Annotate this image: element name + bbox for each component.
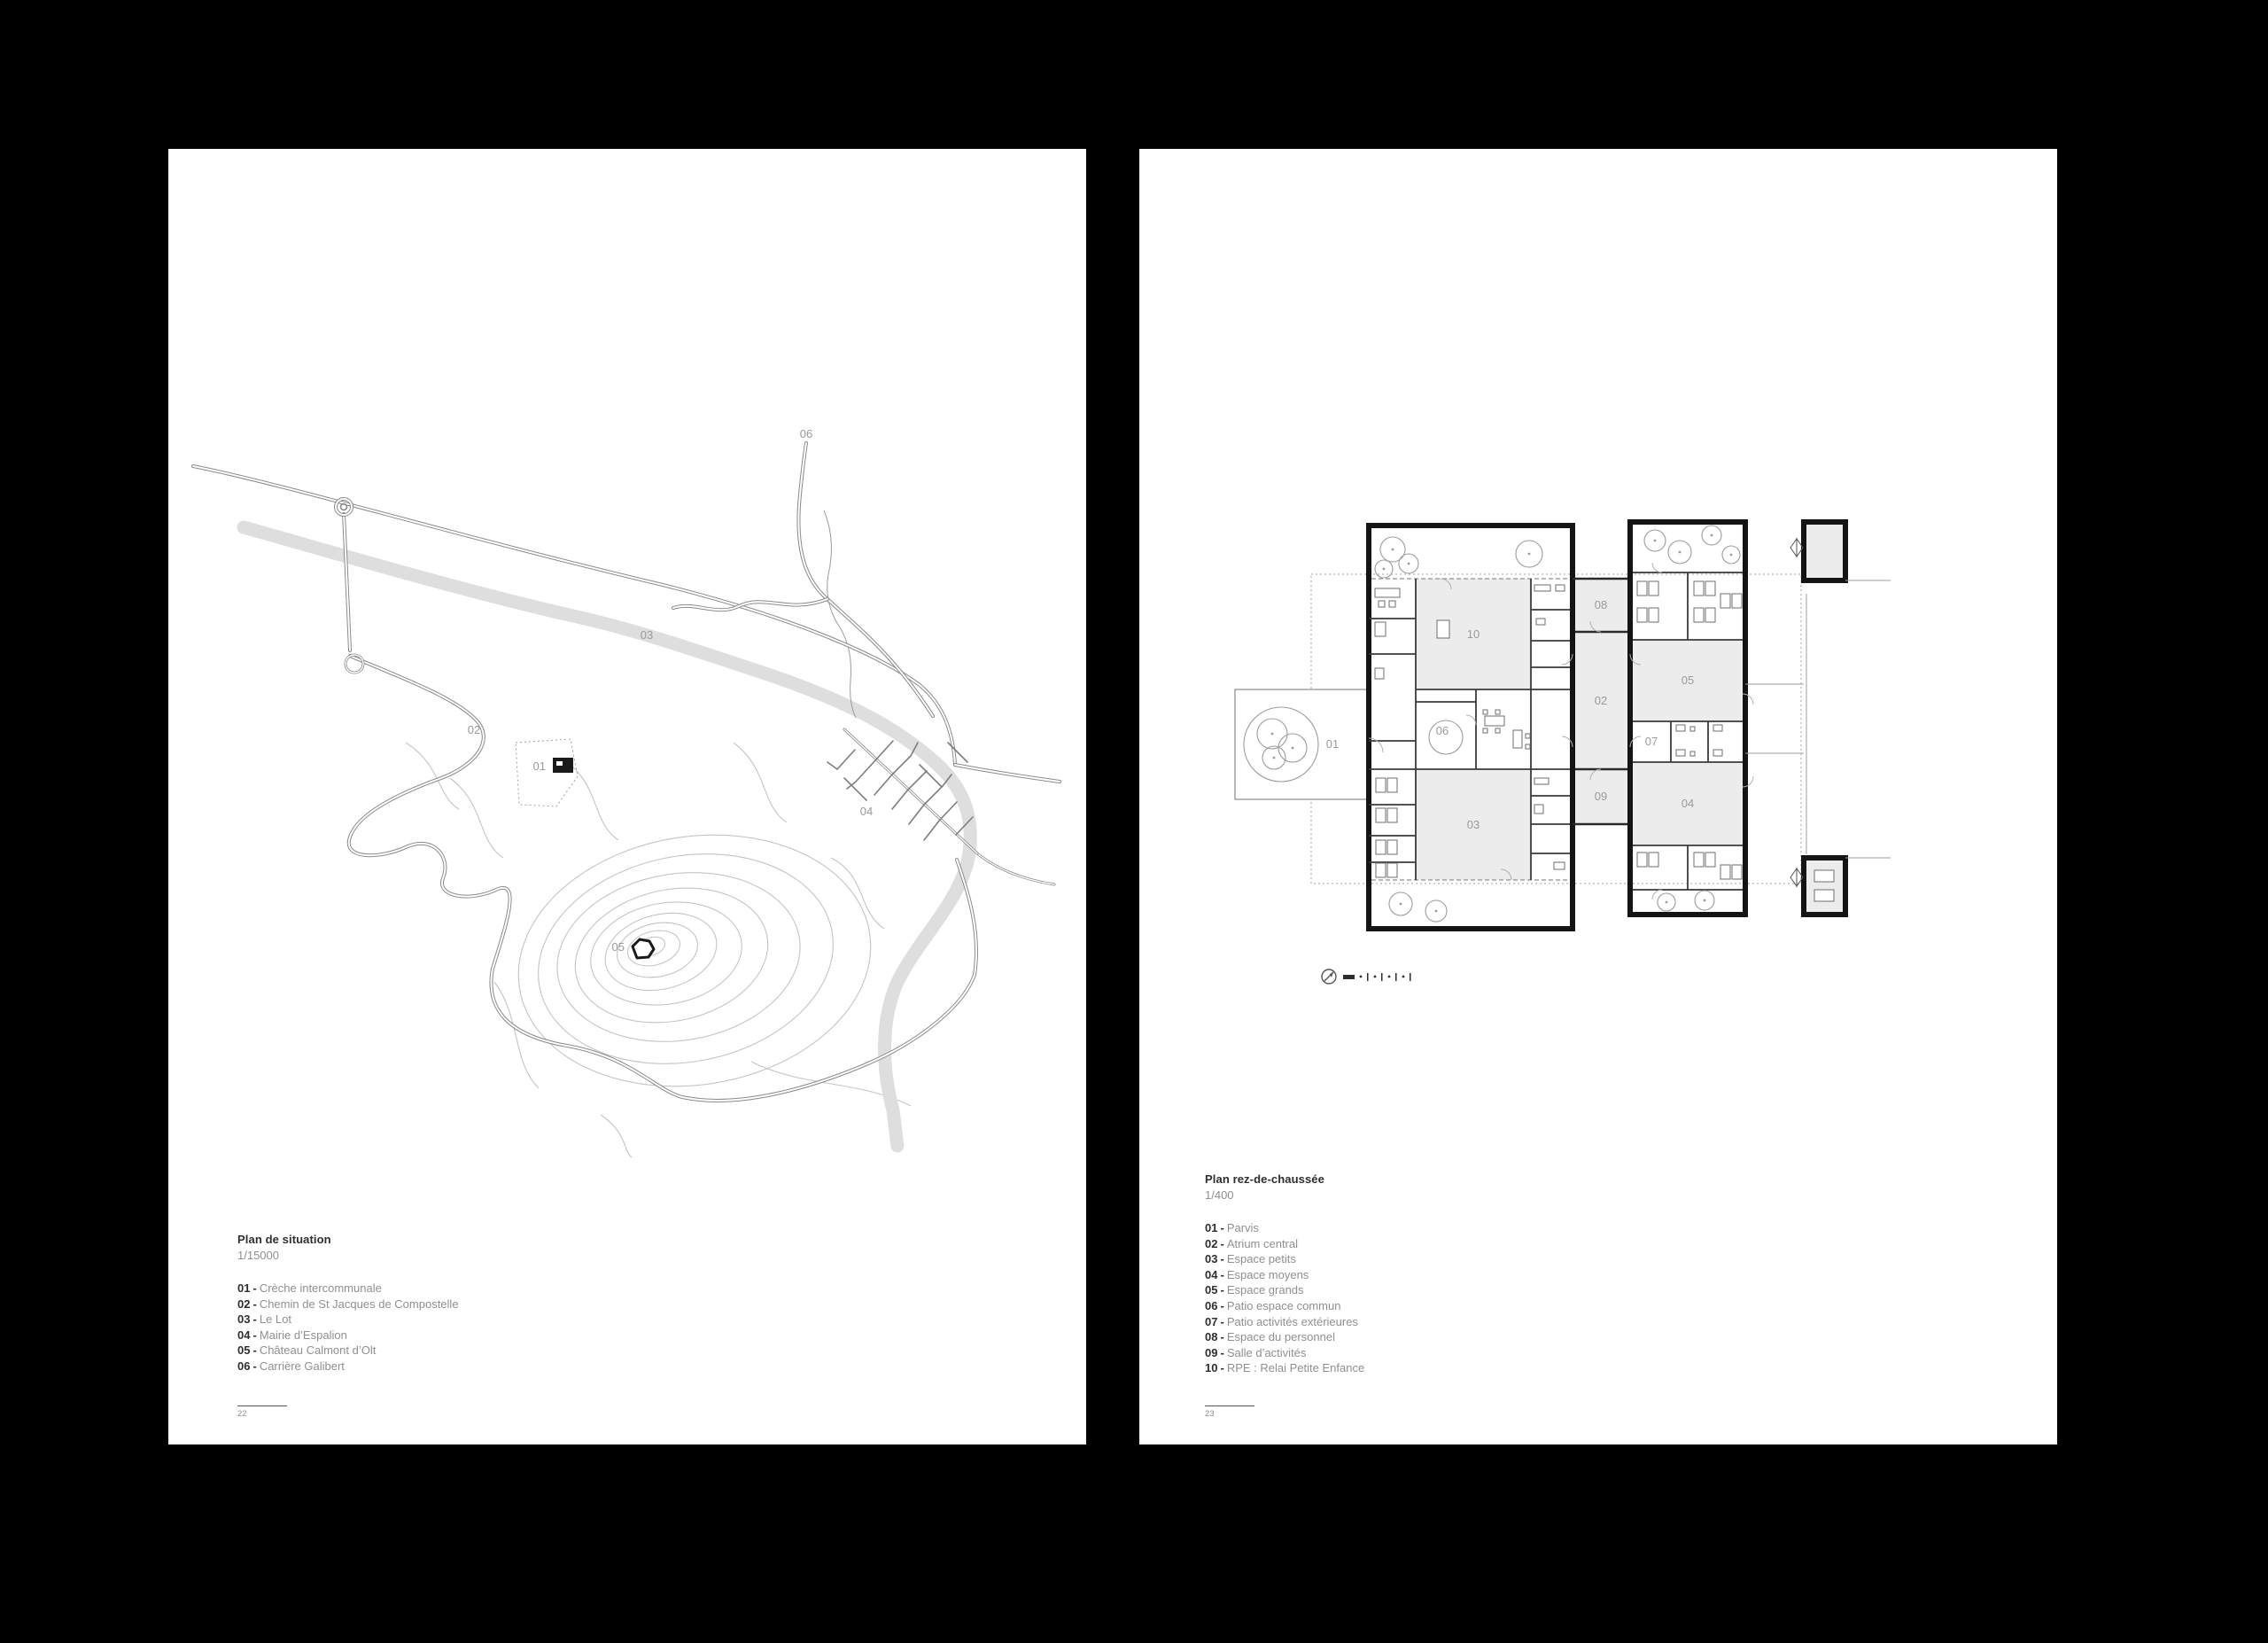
north-compass-icon bbox=[1322, 969, 1336, 984]
page-number: 23 bbox=[1205, 1409, 1254, 1419]
legend-item: 04-Mairie d’Espalion bbox=[237, 1328, 459, 1343]
legend-item: 03-Espace petits bbox=[1205, 1251, 1364, 1267]
legend-item: 06-Patio espace commun bbox=[1205, 1298, 1364, 1314]
plan-label-08: 08 bbox=[1595, 598, 1607, 611]
map-label-06: 06 bbox=[800, 427, 812, 440]
plan-label-04: 04 bbox=[1682, 797, 1694, 810]
annexes bbox=[1745, 522, 1891, 915]
spread-background: 06 03 02 01 04 05 Plan de situation 1/15… bbox=[0, 0, 2268, 1643]
creche-building-icon bbox=[553, 758, 573, 773]
plan-label-02: 02 bbox=[1595, 694, 1607, 707]
site-parcel bbox=[516, 739, 578, 806]
footer-rule bbox=[1205, 1406, 1254, 1406]
river-le-lot bbox=[244, 527, 970, 1146]
page-23-plan-rdc: 01 10 03 06 08 02 09 05 07 04 Plan rez-d… bbox=[1139, 149, 2057, 1444]
drawing-scale: 1/400 bbox=[1205, 1187, 1324, 1203]
legend-item: 02-Chemin de St Jacques de Compostelle bbox=[237, 1296, 459, 1312]
map-label-04: 04 bbox=[860, 805, 873, 818]
plan-label-03: 03 bbox=[1467, 818, 1480, 831]
stream bbox=[824, 510, 856, 718]
title-block: Plan rez-de-chaussée 1/400 bbox=[1205, 1172, 1324, 1203]
legend-item: 06-Carrière Galibert bbox=[237, 1359, 459, 1374]
plan-label-07: 07 bbox=[1645, 735, 1658, 748]
page-number: 22 bbox=[237, 1409, 287, 1419]
legend: 01-Crèche intercommunale 02-Chemin de St… bbox=[237, 1281, 459, 1374]
plan-label-05: 05 bbox=[1682, 674, 1694, 687]
map-label-03: 03 bbox=[641, 628, 653, 642]
plan-label-01: 01 bbox=[1326, 737, 1339, 751]
plan-label-09: 09 bbox=[1595, 790, 1607, 803]
page-footer: 23 bbox=[1205, 1406, 1254, 1419]
contour-lines bbox=[406, 743, 911, 1157]
map-label-02: 02 bbox=[468, 723, 480, 736]
plan-label-10: 10 bbox=[1467, 627, 1480, 641]
footer-rule bbox=[237, 1406, 287, 1406]
page-22-plan-de-situation: 06 03 02 01 04 05 Plan de situation 1/15… bbox=[168, 149, 1086, 1444]
legend-item: 02-Atrium central bbox=[1205, 1236, 1364, 1252]
legend-item: 07-Patio activités extérieures bbox=[1205, 1314, 1364, 1330]
parvis bbox=[1235, 689, 1369, 799]
page-title: Plan rez-de-chaussée bbox=[1205, 1172, 1324, 1187]
map-label-01: 01 bbox=[533, 759, 546, 773]
legend-item: 10-RPE : Relai Petite Enfance bbox=[1205, 1360, 1364, 1376]
page-footer: 22 bbox=[237, 1406, 287, 1419]
legend-item: 04-Espace moyens bbox=[1205, 1267, 1364, 1283]
legend-item: 01-Parvis bbox=[1205, 1220, 1364, 1236]
legend-item: 03-Le Lot bbox=[237, 1312, 459, 1328]
legend-item: 05-Château Calmont d’Olt bbox=[237, 1343, 459, 1359]
legend-item: 01-Crèche intercommunale bbox=[237, 1281, 459, 1296]
roads bbox=[193, 443, 1060, 1101]
legend: 01-Parvis 02-Atrium central 03-Espace pe… bbox=[1205, 1220, 1364, 1376]
map-label-05: 05 bbox=[612, 940, 625, 954]
legend-item: 08-Espace du personnel bbox=[1205, 1329, 1364, 1345]
scale-bar bbox=[1343, 973, 1411, 981]
site-map: 06 03 02 01 04 05 bbox=[184, 362, 1070, 1159]
drawing-scale: 1/15000 bbox=[237, 1248, 331, 1264]
legend-item: 09-Salle d’activités bbox=[1205, 1345, 1364, 1361]
castle-icon bbox=[633, 939, 654, 958]
legend-item: 05-Espace grands bbox=[1205, 1282, 1364, 1298]
plan-label-06: 06 bbox=[1436, 724, 1449, 737]
floor-plan: 01 10 03 06 08 02 09 05 07 04 bbox=[1219, 512, 1901, 991]
title-block: Plan de situation 1/15000 bbox=[237, 1232, 331, 1264]
page-title: Plan de situation bbox=[237, 1232, 331, 1248]
